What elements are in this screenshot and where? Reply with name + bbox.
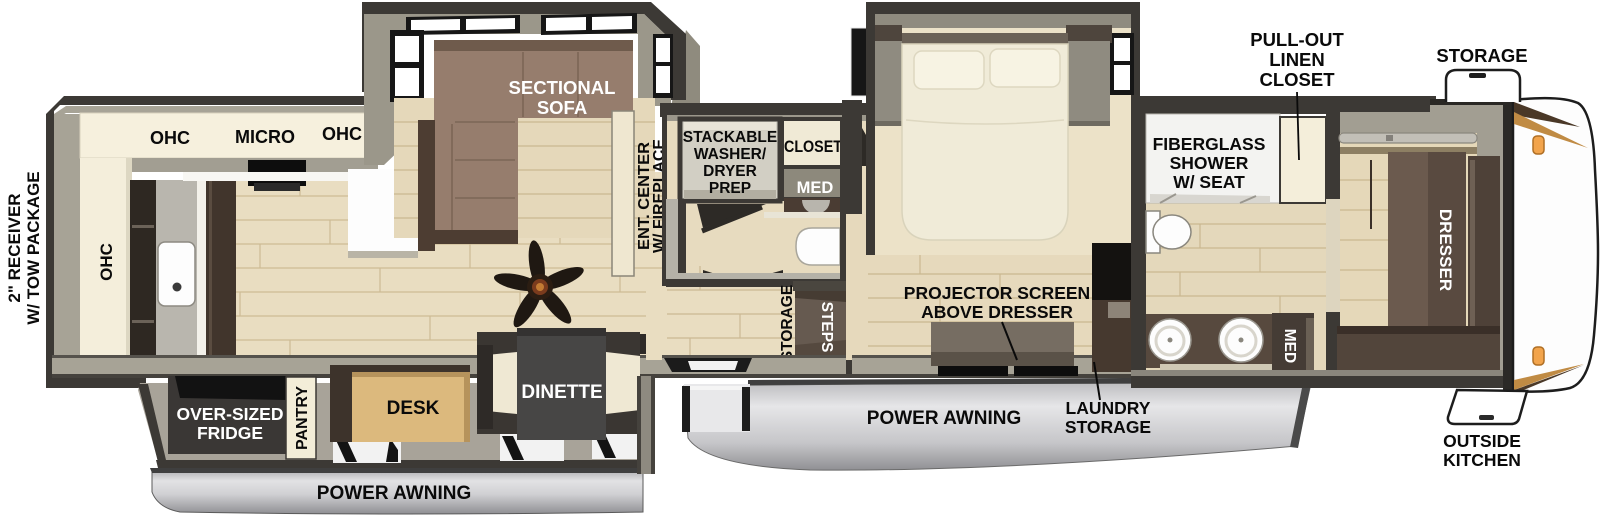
svg-text:OVER-SIZED: OVER-SIZED bbox=[177, 404, 284, 424]
svg-text:STEPS: STEPS bbox=[818, 302, 835, 353]
svg-text:STORAGE: STORAGE bbox=[779, 285, 796, 361]
svg-text:MED: MED bbox=[797, 179, 834, 197]
svg-text:STORAGE: STORAGE bbox=[1065, 417, 1151, 437]
svg-text:KITCHEN: KITCHEN bbox=[1443, 450, 1521, 470]
svg-text:W/ TOW PACKAGE: W/ TOW PACKAGE bbox=[24, 171, 43, 324]
svg-text:MICRO: MICRO bbox=[235, 127, 295, 147]
svg-text:CLOSET: CLOSET bbox=[784, 138, 842, 156]
svg-text:LAUNDRY: LAUNDRY bbox=[1066, 398, 1151, 418]
svg-text:SOFA: SOFA bbox=[537, 97, 587, 118]
svg-text:OHC: OHC bbox=[97, 243, 116, 281]
svg-text:PROJECTOR SCREEN: PROJECTOR SCREEN bbox=[904, 283, 1090, 303]
svg-text:DRESSER: DRESSER bbox=[1436, 209, 1455, 291]
svg-text:ABOVE DRESSER: ABOVE DRESSER bbox=[921, 302, 1073, 322]
svg-text:W/ SEAT: W/ SEAT bbox=[1173, 172, 1245, 192]
svg-text:POWER AWNING: POWER AWNING bbox=[867, 408, 1021, 429]
svg-text:DINETTE: DINETTE bbox=[521, 382, 602, 403]
svg-text:OHC: OHC bbox=[150, 128, 190, 148]
svg-text:DESK: DESK bbox=[387, 398, 440, 419]
svg-text:STORAGE: STORAGE bbox=[1436, 45, 1527, 66]
svg-text:2" RECEIVER: 2" RECEIVER bbox=[5, 193, 24, 302]
svg-text:MED: MED bbox=[1281, 329, 1298, 363]
svg-text:FIBERGLASS: FIBERGLASS bbox=[1153, 134, 1266, 154]
svg-text:PULL-OUT: PULL-OUT bbox=[1250, 29, 1344, 50]
svg-text:SECTIONAL: SECTIONAL bbox=[509, 77, 616, 98]
svg-text:SHOWER: SHOWER bbox=[1170, 153, 1249, 173]
svg-text:OUTSIDE: OUTSIDE bbox=[1443, 431, 1521, 451]
svg-text:CLOSET: CLOSET bbox=[1259, 69, 1335, 90]
svg-text:WASHER/: WASHER/ bbox=[694, 146, 767, 163]
svg-text:PANTRY: PANTRY bbox=[294, 386, 311, 450]
svg-text:POWER AWNING: POWER AWNING bbox=[317, 483, 471, 504]
svg-text:OHC: OHC bbox=[322, 124, 362, 144]
svg-text:DRYER: DRYER bbox=[703, 163, 757, 180]
svg-text:LINEN: LINEN bbox=[1269, 49, 1325, 70]
svg-text:STACKABLE: STACKABLE bbox=[683, 129, 777, 146]
svg-text:FRIDGE: FRIDGE bbox=[197, 423, 263, 443]
svg-text:PREP: PREP bbox=[709, 180, 751, 197]
